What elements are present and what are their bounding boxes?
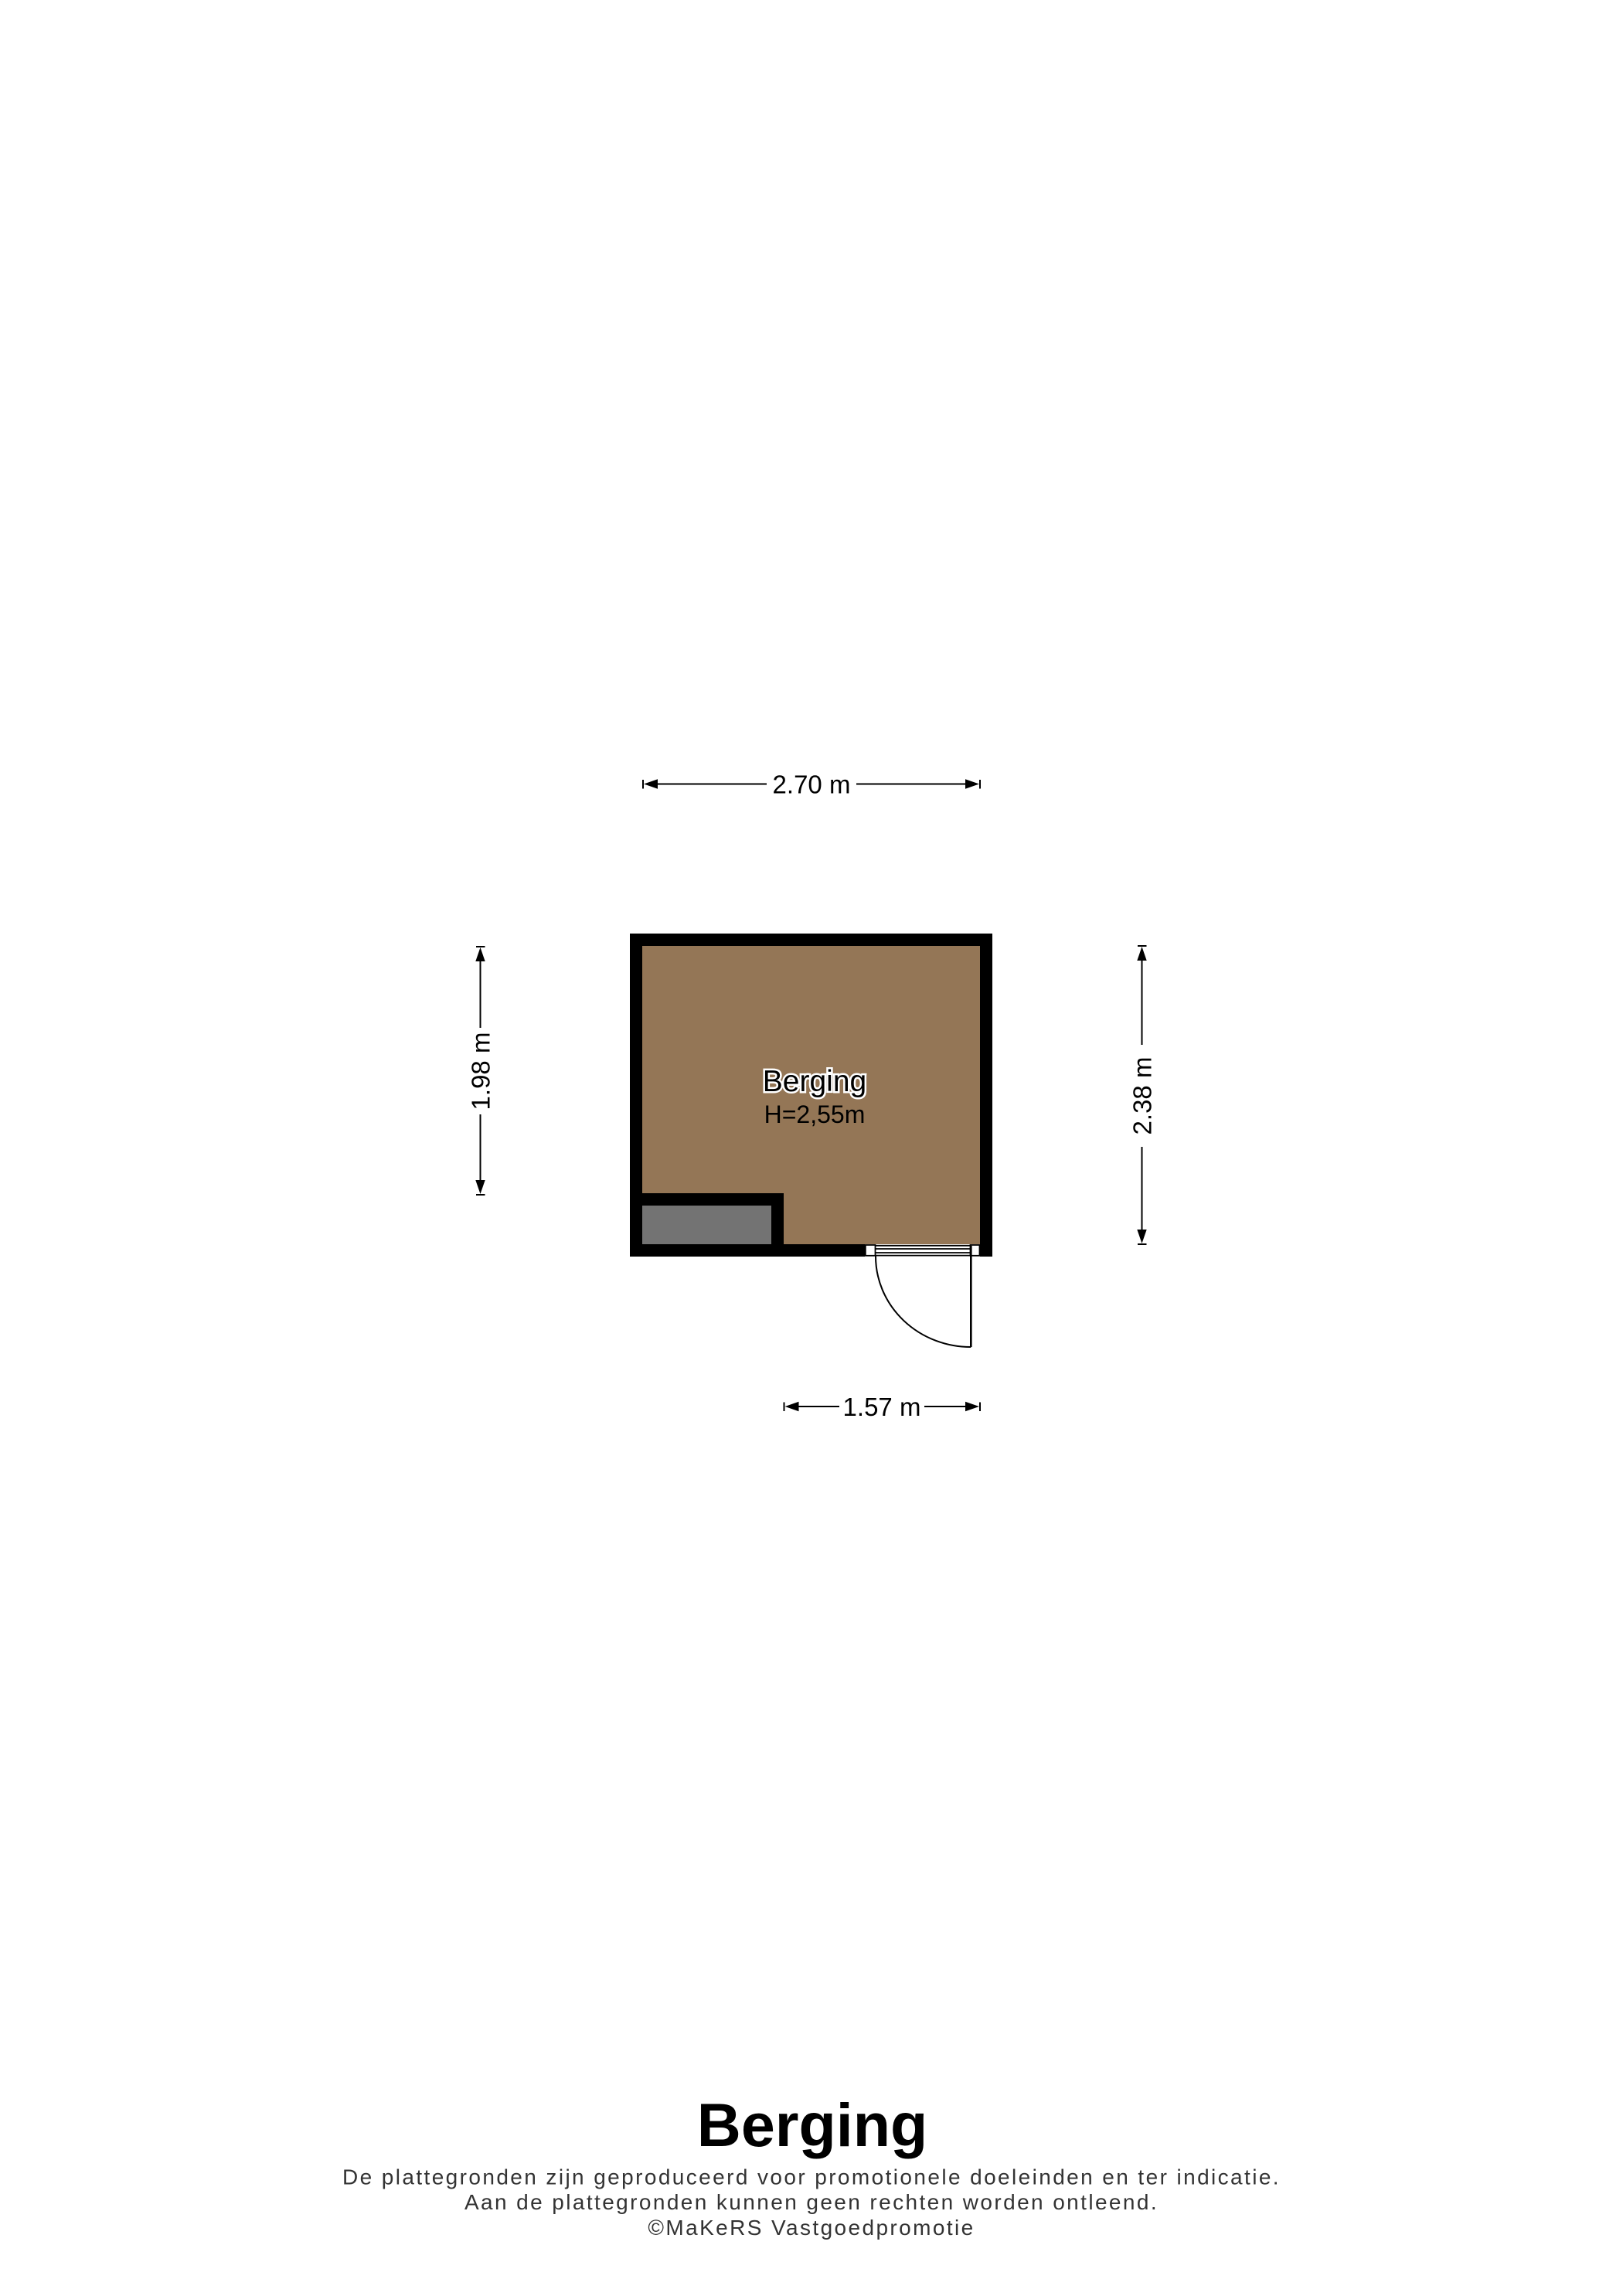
svg-text:H=2,55m: H=2,55m — [764, 1100, 866, 1128]
svg-text:1.57 m: 1.57 m — [843, 1393, 921, 1421]
svg-text:2.70 m: 2.70 m — [773, 770, 851, 799]
svg-text:1.98 m: 1.98 m — [467, 1032, 495, 1111]
svg-text:Berging: Berging — [763, 1065, 866, 1098]
svg-text:©MaKeRS Vastgoedpromotie: ©MaKeRS Vastgoedpromotie — [648, 2216, 975, 2240]
svg-text:Berging: Berging — [697, 2090, 927, 2159]
svg-text:De plattegronden zijn geproduc: De plattegronden zijn geproduceerd voor … — [342, 2165, 1281, 2189]
svg-text:Aan de plattegronden kunnen ge: Aan de plattegronden kunnen geen rechten… — [464, 2190, 1159, 2214]
svg-text:2.38 m: 2.38 m — [1128, 1057, 1157, 1135]
